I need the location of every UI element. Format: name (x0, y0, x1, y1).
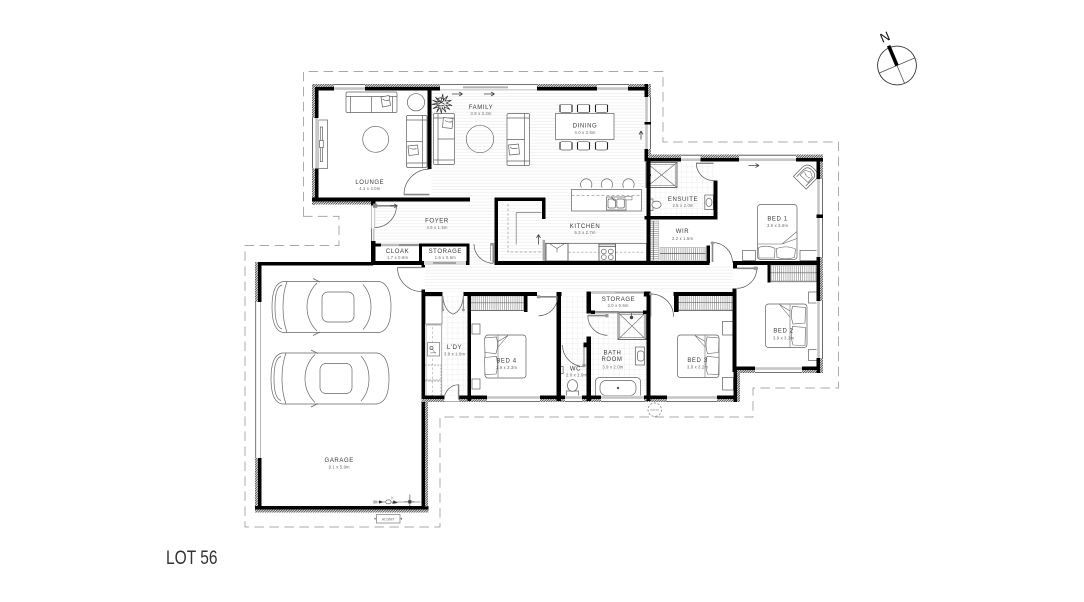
svg-text:2.0 x 1.0m: 2.0 x 1.0m (566, 373, 588, 378)
svg-text:2.0 x 0.6m: 2.0 x 0.6m (607, 303, 629, 308)
svg-text:GARAGE: GARAGE (325, 458, 354, 464)
svg-text:DINING: DINING (573, 124, 598, 130)
svg-text:2.5 x 2.0m: 2.5 x 2.0m (672, 203, 694, 208)
svg-text:3.6 x 3.6m: 3.6 x 3.6m (767, 223, 789, 228)
svg-text:BED 3: BED 3 (687, 358, 707, 364)
svg-text:BED 2: BED 2 (773, 329, 793, 335)
svg-text:BED 4: BED 4 (496, 359, 516, 365)
svg-text:4.0 x 3.5m: 4.0 x 3.5m (574, 130, 596, 135)
svg-text:ENSUITE: ENSUITE (668, 197, 698, 203)
svg-text:KITCHEN: KITCHEN (570, 224, 601, 230)
svg-text:1.6 x 0.6m: 1.6 x 0.6m (435, 255, 457, 260)
svg-text:WIR: WIR (676, 229, 690, 235)
svg-text:4.1 x 4.0m: 4.1 x 4.0m (359, 186, 381, 191)
svg-text:L'DY: L'DY (447, 345, 462, 351)
svg-text:FAMILY: FAMILY (469, 105, 494, 111)
svg-text:WMTR: WMTR (650, 408, 659, 412)
svg-text:2.2 x 1.5m: 2.2 x 1.5m (672, 236, 694, 241)
svg-text:WC: WC (570, 366, 581, 372)
svg-text:LOT 56: LOT 56 (166, 548, 218, 569)
svg-text:3.9 x 2.0m: 3.9 x 2.0m (602, 365, 624, 370)
svg-text:5.3 x 2.7m: 5.3 x 2.7m (574, 230, 596, 235)
svg-text:3.9 x 3.2m: 3.9 x 3.2m (687, 364, 709, 369)
svg-text:BED 1: BED 1 (767, 217, 787, 223)
svg-text:1.7 x 0.6m: 1.7 x 0.6m (387, 255, 409, 260)
svg-text:3.9 x 1.6m: 3.9 x 1.6m (444, 352, 466, 357)
svg-text:3.9 x 3.3m: 3.9 x 3.3m (496, 365, 518, 370)
svg-text:4.5 x 1.5m: 4.5 x 1.5m (426, 225, 448, 230)
svg-text:ACUNIT: ACUNIT (382, 518, 395, 522)
svg-text:3.9 x 3.3m: 3.9 x 3.3m (773, 335, 795, 340)
svg-text:9.1 x 5.9m: 9.1 x 5.9m (329, 465, 351, 470)
svg-text:3.9 x 3.2m: 3.9 x 3.2m (470, 111, 492, 116)
svg-text:ROOM: ROOM (601, 357, 622, 363)
svg-text:FOYER: FOYER (425, 219, 449, 225)
svg-text:BATH: BATH (604, 350, 622, 356)
svg-text:LOUNGE: LOUNGE (355, 180, 384, 186)
